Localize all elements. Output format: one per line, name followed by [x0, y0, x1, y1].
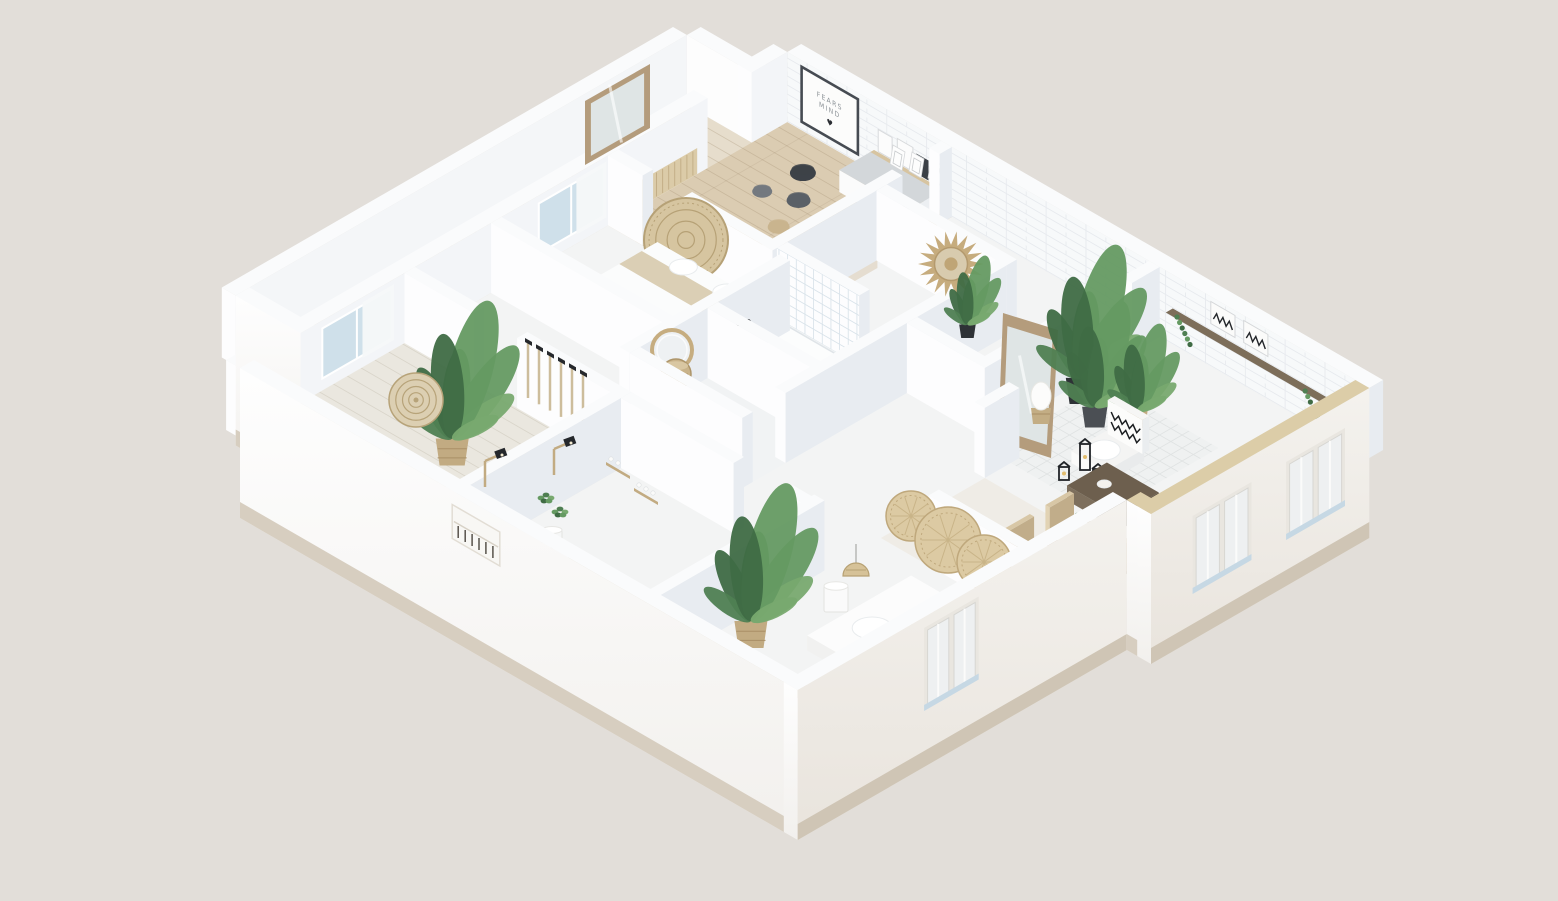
table-decor [1097, 480, 1111, 488]
pouf [790, 164, 816, 181]
rattan-spiral [389, 373, 443, 427]
scene-canvas: FEARSMIND♥ [0, 0, 1558, 901]
lantern [1079, 439, 1091, 470]
pillow [669, 259, 697, 275]
pouf [787, 192, 811, 208]
drum-lamp [824, 582, 848, 612]
floor-plan-render: FEARSMIND♥ [0, 0, 1558, 901]
egg-lamp [1031, 382, 1051, 424]
pouf [752, 185, 772, 198]
